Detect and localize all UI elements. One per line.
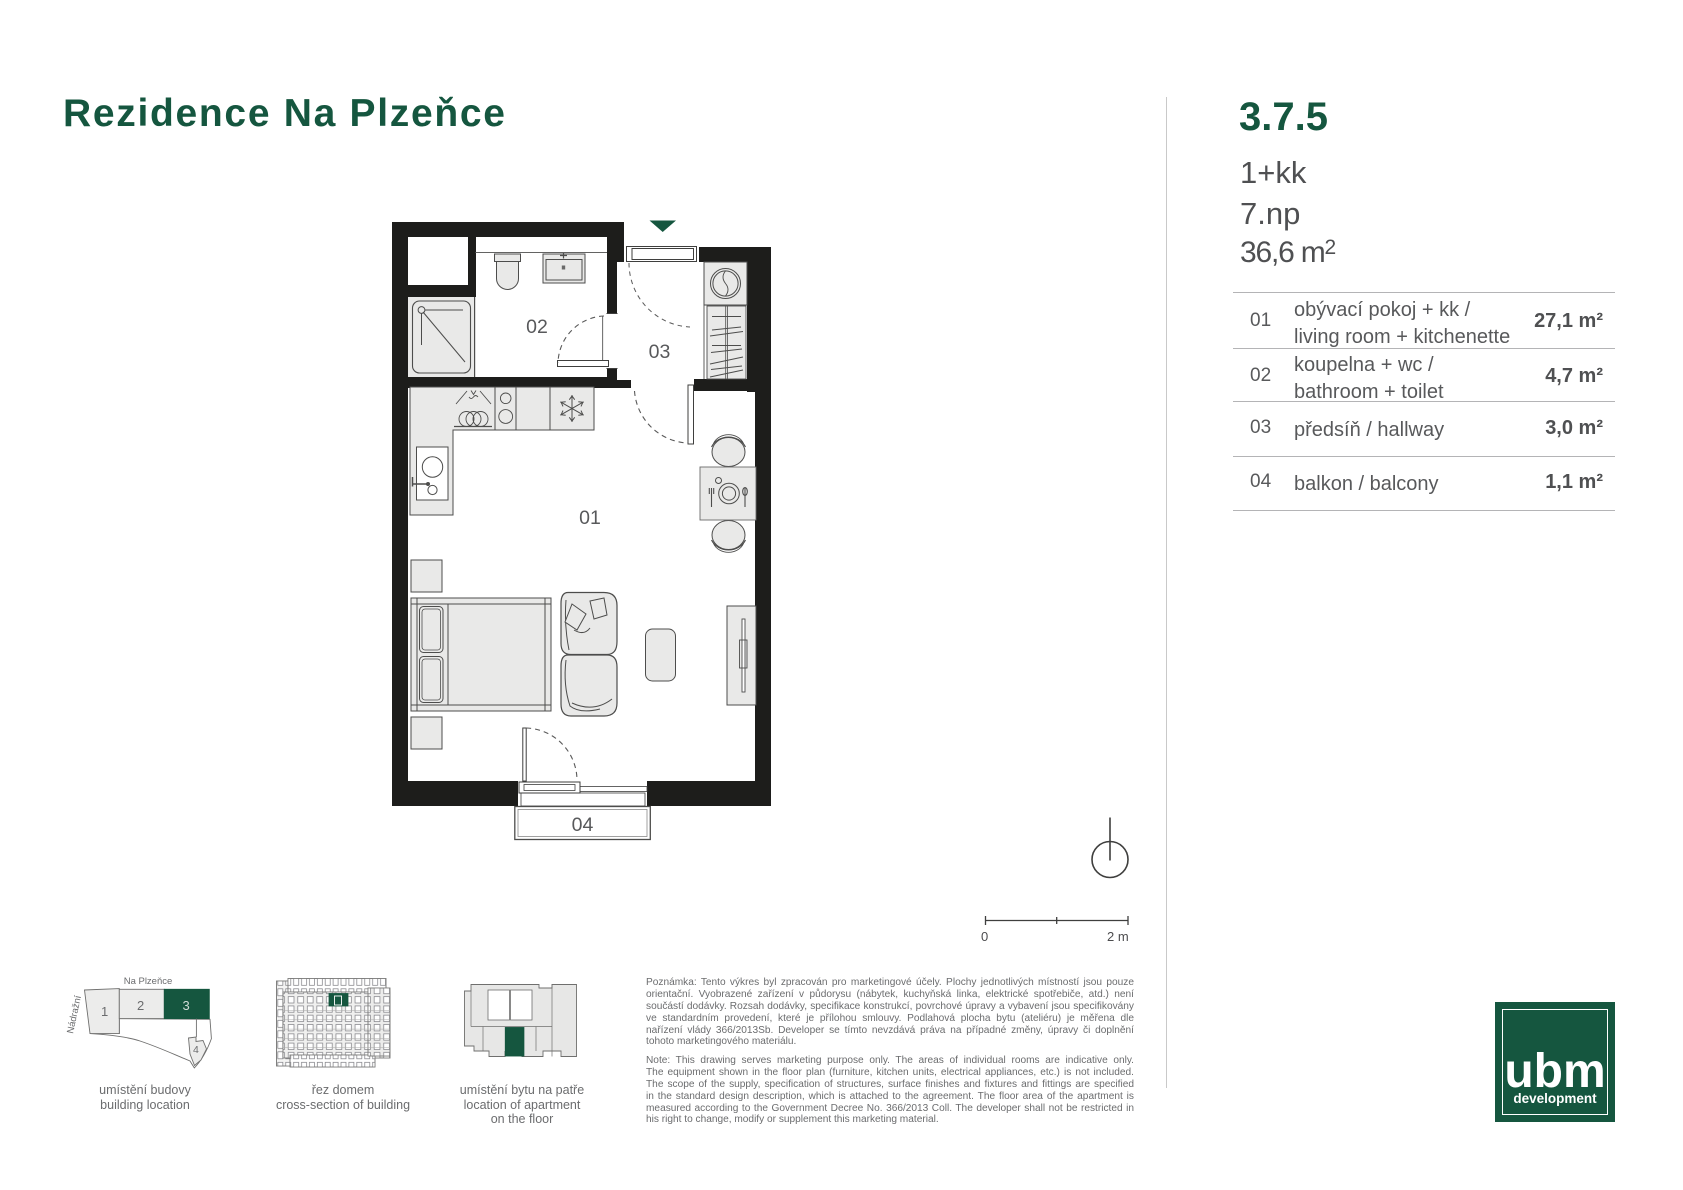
svg-text:02: 02	[526, 316, 548, 338]
svg-text:03: 03	[649, 341, 671, 363]
svg-text:Nádražní: Nádražní	[65, 994, 84, 1034]
svg-text:01: 01	[579, 507, 601, 529]
svg-text:2 m: 2 m	[1107, 929, 1129, 944]
svg-text:4: 4	[193, 1044, 199, 1056]
svg-text:1: 1	[101, 1004, 108, 1019]
svg-text:Na Plzeňce: Na Plzeňce	[124, 976, 173, 987]
svg-text:04: 04	[572, 814, 594, 836]
svg-text:2: 2	[137, 998, 144, 1013]
svg-text:0: 0	[981, 929, 988, 944]
svg-text:3: 3	[183, 998, 190, 1013]
